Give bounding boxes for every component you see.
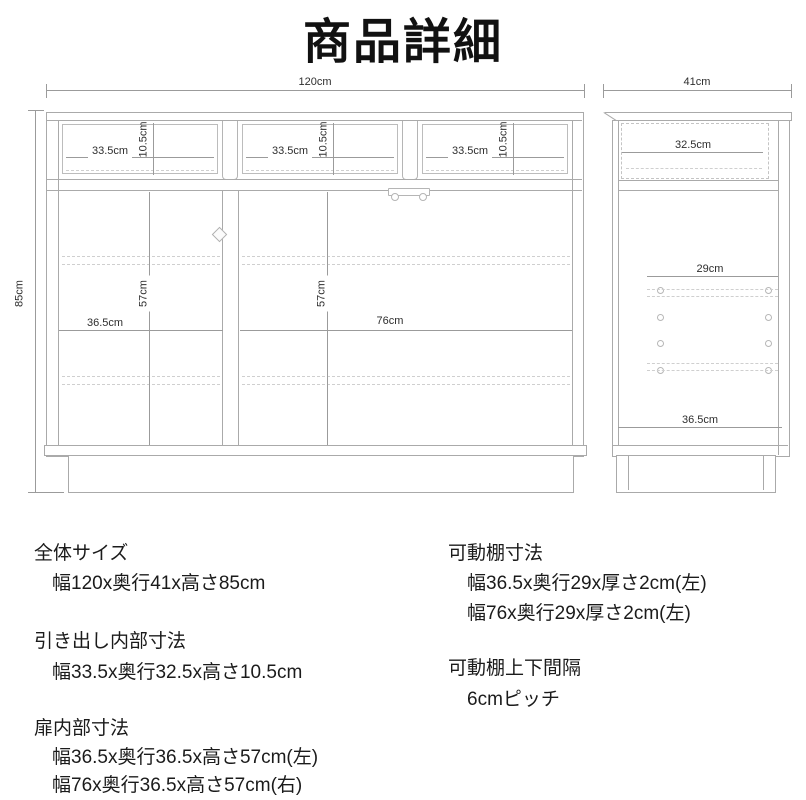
right-inner-height-dim-label: 57cm [316, 276, 329, 312]
side-shelf-dash-4 [647, 370, 778, 371]
drawer-height-dim-line [513, 123, 514, 175]
drawer-height-dim-line [333, 123, 334, 175]
side-depth-dim-label: 41cm [672, 76, 722, 89]
left-inner-height-dim-line [149, 192, 150, 445]
spec-heading-shelf-pitch: 可動棚上下間隔 [448, 653, 581, 680]
drawer-width-dim-line [426, 157, 564, 158]
shelf-pin-hole [657, 314, 664, 321]
drawer-bottom-dash [426, 170, 564, 171]
shelf-pin-hole [765, 340, 772, 347]
side-shelf-dash-3 [647, 363, 778, 364]
right-inner-height-dim-line [327, 192, 328, 445]
front-height-dim-tick-bottom [28, 492, 64, 493]
drawer-divider-2 [402, 121, 418, 180]
side-base-plinth [616, 455, 776, 493]
side-shelf-dash-2 [647, 296, 778, 297]
side-rail-top-line [619, 180, 778, 181]
side-top-right-edge-line [791, 112, 792, 121]
side-bottom-depth-dim-line [618, 427, 782, 428]
product-detail-page: 商品詳細 120cm 85cm 33.5cm 10.5cm 33.5cm 10.… [0, 0, 806, 800]
side-drawer-depth-dim-line [622, 152, 763, 153]
side-back-panel-line [778, 121, 779, 455]
front-right-wall-line [572, 121, 573, 445]
front-height-dim-tick-top [28, 110, 44, 111]
side-depth-dim-line [603, 90, 791, 91]
front-width-dim-tick-left [46, 84, 47, 98]
left-shelf-dash-4 [62, 384, 220, 385]
drawer-bottom-dash [246, 170, 394, 171]
spec-value-drawer-inner: 幅33.5x奥行32.5x高さ10.5cm [52, 657, 302, 684]
front-height-dim-line [35, 110, 36, 492]
side-depth-dim-tick-left [603, 84, 604, 98]
side-bottom-depth-dim-label: 36.5cm [676, 414, 724, 427]
side-base-back-leg-line [763, 456, 764, 490]
drawer-divider-1 [222, 121, 238, 180]
drawer-width-dim-label: 33.5cm [268, 145, 312, 158]
left-shelf-dash-2 [62, 264, 220, 265]
spec-heading-door-inner: 扉内部寸法 [34, 713, 129, 740]
spec-value-overall-size: 幅120x奥行41x高さ85cm [52, 568, 265, 595]
side-drawer-depth-dim-label: 32.5cm [668, 139, 718, 152]
right-inner-width-dim-line [240, 330, 572, 331]
right-shelf-dash-3 [242, 376, 570, 377]
right-inner-width-dim-label: 76cm [368, 315, 412, 328]
drawer-height-dim-line [153, 123, 154, 175]
drawer-height-dim-label: 10.5cm [318, 120, 331, 160]
right-shelf-dash-2 [242, 264, 570, 265]
drawer-width-dim-label: 33.5cm [88, 145, 132, 158]
spec-heading-shelf-size: 可動棚寸法 [448, 538, 543, 565]
side-shelf-depth-dim-line [647, 276, 778, 277]
front-width-dim-label: 120cm [285, 76, 345, 89]
shelf-pin-hole [657, 340, 664, 347]
drawer-height-dim-label: 10.5cm [138, 120, 151, 160]
drawer-cell-3: 33.5cm 10.5cm [418, 121, 572, 179]
left-inner-height-dim-label: 57cm [138, 276, 151, 312]
left-shelf-dash-3 [62, 376, 220, 377]
front-rail-bottom-line [47, 190, 582, 191]
drawer-width-dim-label: 33.5cm [448, 145, 492, 158]
side-front-panel-line [618, 121, 619, 445]
left-shelf-dash-1 [62, 256, 220, 257]
spec-heading-overall-size: 全体サイズ [34, 538, 128, 565]
front-rail-top-line [47, 179, 582, 180]
side-depth-dim-tick-right [791, 84, 792, 98]
shelf-pin-hole [765, 314, 772, 321]
front-base-plinth [68, 455, 574, 493]
drawer-height-dim-label: 10.5cm [498, 120, 511, 160]
spec-value-door-inner-right: 幅76x奥行36.5x高さ57cm(右) [52, 770, 302, 797]
door-divider-left-line [222, 190, 223, 445]
drawer-bottom-dash [66, 170, 214, 171]
spec-value-shelf-pitch: 6cmピッチ [467, 684, 560, 711]
front-height-dim-label: 85cm [14, 276, 27, 312]
left-inner-width-dim-line [59, 330, 223, 331]
right-shelf-dash-1 [242, 256, 570, 257]
spec-value-door-inner-left: 幅36.5x奥行36.5x高さ57cm(左) [52, 742, 318, 769]
side-top-edge-line [605, 112, 792, 113]
side-drawer-inner-dash [626, 168, 762, 169]
drawer-face [422, 124, 568, 174]
side-rail-bottom-line [619, 190, 778, 191]
spec-value-shelf-size-1: 幅36.5x奥行29x厚さ2cm(左) [467, 568, 707, 595]
right-shelf-dash-4 [242, 384, 570, 385]
front-width-dim-tick-right [584, 84, 585, 98]
left-inner-width-dim-label: 36.5cm [81, 317, 129, 330]
drawer-cell-2: 33.5cm 10.5cm [238, 121, 402, 179]
spec-value-shelf-size-2: 幅76x奥行29x厚さ2cm(左) [467, 598, 691, 625]
drawer-cell-1: 33.5cm 10.5cm [58, 121, 222, 179]
front-width-dim-line [46, 90, 584, 91]
side-base-front-leg-line [628, 456, 629, 490]
spec-heading-drawer-inner: 引き出し内部寸法 [34, 626, 186, 653]
side-shelf-dash-1 [647, 289, 778, 290]
door-divider-right-line [238, 190, 239, 445]
right-door-handle-icon [388, 188, 430, 202]
side-bottom-board-line [613, 445, 788, 446]
side-shelf-depth-dim-label: 29cm [688, 263, 732, 276]
page-title: 商品詳細 [0, 2, 806, 72]
